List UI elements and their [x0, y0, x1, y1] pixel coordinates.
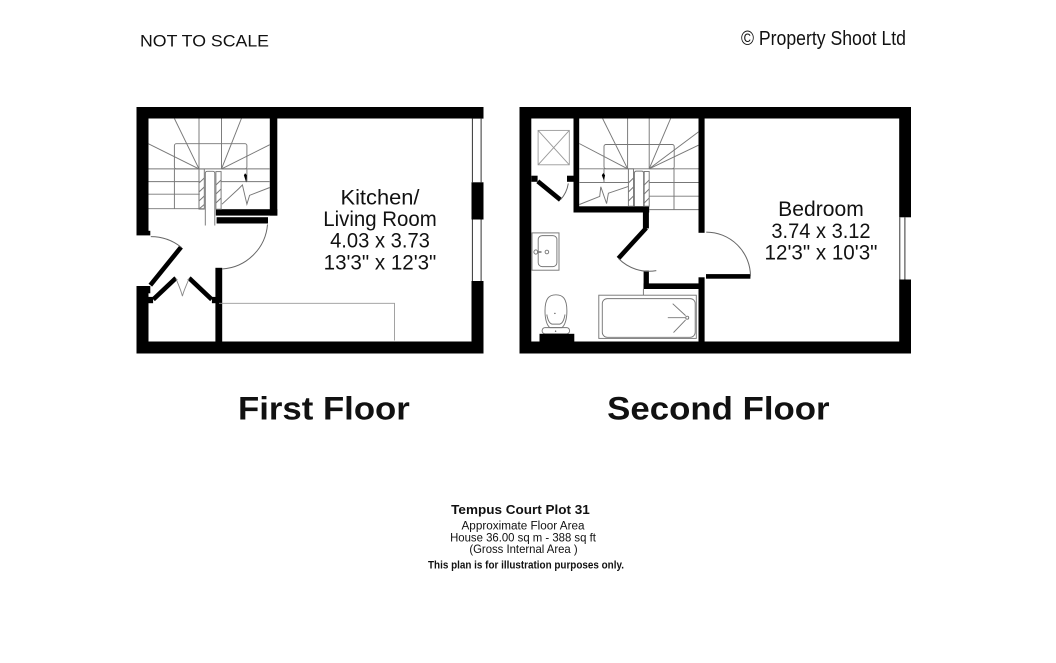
svg-text:Second Floor: Second Floor [607, 391, 830, 427]
svg-text:Bedroom: Bedroom [778, 198, 864, 221]
svg-text:13'3" x 12'3": 13'3" x 12'3" [324, 251, 437, 274]
svg-text:3.74 x 3.12: 3.74 x 3.12 [771, 220, 870, 243]
svg-text:This plan is for illustration: This plan is for illustration purposes o… [428, 560, 624, 572]
svg-text:4.03 x 3.73: 4.03 x 3.73 [330, 230, 430, 253]
svg-text:Kitchen/: Kitchen/ [341, 186, 420, 209]
svg-text:NOT TO SCALE: NOT TO SCALE [140, 32, 269, 51]
svg-text:(Gross Internal Area ): (Gross Internal Area ) [469, 542, 577, 556]
svg-text:© Property Shoot Ltd: © Property Shoot Ltd [741, 28, 906, 50]
svg-text:First Floor: First Floor [238, 391, 410, 427]
svg-text:12'3" x 10'3": 12'3" x 10'3" [765, 242, 878, 265]
svg-text:Tempus Court Plot 31: Tempus Court Plot 31 [451, 502, 590, 517]
svg-text:Living Room: Living Room [323, 208, 437, 231]
